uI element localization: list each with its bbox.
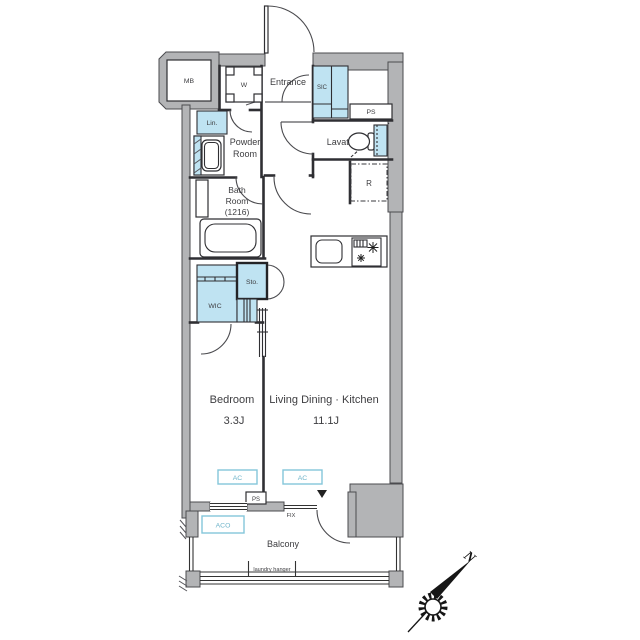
lavatory-door-arc xyxy=(281,122,313,154)
balcony-post-left xyxy=(186,571,200,587)
burner-icon-small xyxy=(357,254,365,262)
hanger-closet xyxy=(237,299,257,322)
entrance-door-leaf xyxy=(265,6,269,53)
bath-label-1: Bath xyxy=(228,185,246,195)
toilet-icon xyxy=(349,123,390,157)
ac-ldk-label: AC xyxy=(298,475,308,482)
ac-bedroom-label: AC xyxy=(233,475,243,482)
ldk-size-label: 11.1J xyxy=(313,415,339,427)
storage-bifold-arc-top xyxy=(267,265,284,282)
right-wall-upper xyxy=(388,62,403,212)
bedroom-label: Bedroom xyxy=(210,394,255,406)
ps-bottom-label: PS xyxy=(252,497,260,503)
entrance-door-arc xyxy=(268,6,314,52)
bedroom-window xyxy=(210,502,247,511)
wic-label: WIC xyxy=(208,303,221,310)
corner-block xyxy=(350,484,403,537)
compass-icon: N xyxy=(408,548,478,632)
ps-top-label: PS xyxy=(366,109,376,116)
bottom-wall-a xyxy=(190,502,210,511)
site-hatch-left-upper xyxy=(180,520,186,539)
right-wall-lower xyxy=(390,212,402,483)
floor-plan: MB xyxy=(0,0,640,640)
washer-label: W xyxy=(241,82,248,89)
laundry-hanger: laundry hanger xyxy=(249,561,296,577)
ldk-door-arc xyxy=(274,177,311,214)
bath-label-2: Room xyxy=(226,196,249,206)
top-wall-left xyxy=(219,54,265,66)
fix-label: FIX xyxy=(287,513,296,519)
entrance-label: Entrance xyxy=(270,77,306,87)
bath-label-3: (1216) xyxy=(225,207,250,217)
balcony-label: Balcony xyxy=(267,539,300,549)
bedroom-size-label: 3.3J xyxy=(224,415,245,427)
powder-room-label-2: Room xyxy=(233,149,257,159)
sic-label: SIC xyxy=(317,85,328,91)
wic-door-arc xyxy=(201,324,231,354)
left-wall-foot xyxy=(186,511,198,537)
burner-icon xyxy=(368,242,379,253)
sto-label: Sto. xyxy=(246,279,258,286)
shoe-closet xyxy=(313,66,348,118)
powder-room-door-arc xyxy=(230,110,252,132)
fix-window xyxy=(284,506,317,509)
balcony-post-right xyxy=(389,571,403,587)
corner-block-step xyxy=(348,492,356,537)
bath-counter xyxy=(196,180,208,217)
bathtub-icon xyxy=(200,219,261,257)
left-wall xyxy=(182,105,190,518)
storage-bifold-arc-bottom xyxy=(267,282,284,299)
aco-label: ACO xyxy=(216,523,231,530)
exterior-walls xyxy=(159,52,403,587)
linen-label: Lin. xyxy=(207,120,218,127)
vanity-sink-icon xyxy=(194,136,224,175)
marker-triangle-icon xyxy=(317,490,327,498)
ldk-label: Living Dining · Kitchen xyxy=(269,394,378,406)
balcony-railing xyxy=(200,572,389,584)
powder-room-label-1: Powder xyxy=(230,137,261,147)
wic-closet xyxy=(197,265,237,322)
north-label: N xyxy=(460,548,479,567)
fridge-label: R xyxy=(366,179,372,188)
balcony-door-arc xyxy=(317,510,350,543)
meter-box-label: MB xyxy=(184,78,195,85)
sliding-door xyxy=(257,308,268,357)
kitchen-counter xyxy=(311,236,387,267)
